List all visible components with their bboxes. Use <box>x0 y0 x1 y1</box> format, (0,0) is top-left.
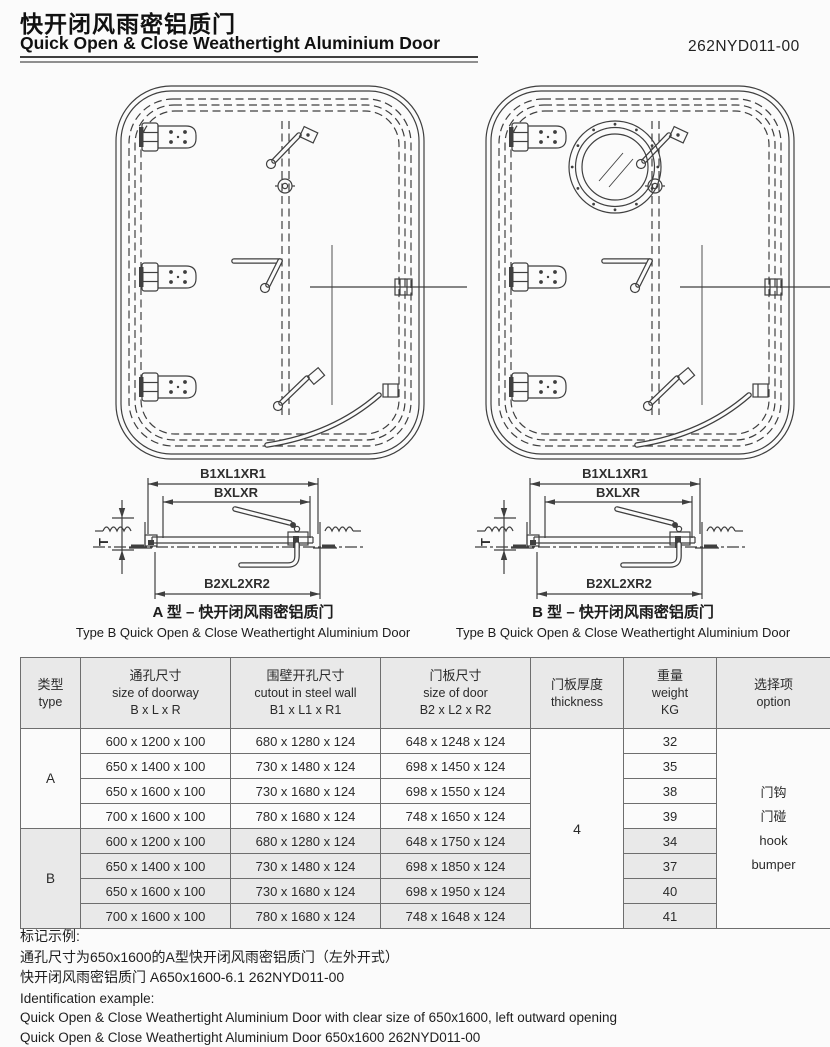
weight-cell: 37 <box>624 854 717 879</box>
cutout-size-cell: 730 x 1480 x 124 <box>231 854 381 879</box>
document-number: 262NYD011-00 <box>688 38 800 56</box>
column-header: 通孔尺寸size of doorwayB x L x R <box>81 658 231 729</box>
type-a-caption-en: Type B Quick Open & Close Weathertight A… <box>63 623 423 643</box>
door-size-cell: 698 x 1550 x 124 <box>381 779 531 804</box>
title-divider <box>20 56 478 63</box>
option-line: 门钩 <box>717 781 830 805</box>
datasheet-page: 快开闭风雨密铝质门 Quick Open & Close Weathertigh… <box>0 0 830 1047</box>
dimension-label-thickness: T <box>96 538 111 546</box>
weight-cell: 35 <box>624 754 717 779</box>
dimension-label-cutout: B1XL1XR1 <box>200 466 266 481</box>
option-line: bumper <box>717 853 830 877</box>
example-line2-en: Quick Open & Close Weathertight Aluminiu… <box>20 1028 815 1047</box>
table-row: 650 x 1600 x 100730 x 1680 x 124698 x 15… <box>21 779 830 804</box>
door-size-cell: 698 x 1950 x 124 <box>381 879 531 904</box>
type-a-caption: A 型 – 快开闭风雨密铝质门 Type B Quick Open & Clos… <box>63 602 423 643</box>
spec-table-body: A600 x 1200 x 100680 x 1280 x 124648 x 1… <box>21 729 830 929</box>
type-b-caption-en: Type B Quick Open & Close Weathertight A… <box>443 623 803 643</box>
type-cell: A <box>21 729 81 829</box>
example-label-zh: 标记示例: <box>20 927 815 947</box>
table-row: 650 x 1400 x 100730 x 1480 x 124698 x 18… <box>21 854 830 879</box>
cutout-size-cell: 780 x 1680 x 124 <box>231 904 381 929</box>
cutout-size-cell: 730 x 1680 x 124 <box>231 779 381 804</box>
weight-cell: 40 <box>624 879 717 904</box>
doorway-size-cell: 650 x 1400 x 100 <box>81 854 231 879</box>
dimension-label-cutout: B1XL1XR1 <box>582 466 648 481</box>
weight-cell: 38 <box>624 779 717 804</box>
table-row: 650 x 1400 x 100730 x 1480 x 124698 x 14… <box>21 754 830 779</box>
door-size-cell: 698 x 1850 x 124 <box>381 854 531 879</box>
weight-cell: 39 <box>624 804 717 829</box>
weight-cell: 32 <box>624 729 717 754</box>
doorway-size-cell: 650 x 1400 x 100 <box>81 754 231 779</box>
table-row: 650 x 1600 x 100730 x 1680 x 124698 x 19… <box>21 879 830 904</box>
cutout-size-cell: 680 x 1280 x 124 <box>231 829 381 854</box>
table-row: A600 x 1200 x 100680 x 1280 x 124648 x 1… <box>21 729 830 754</box>
column-header: 门板尺寸size of doorB2 x L2 x R2 <box>381 658 531 729</box>
option-line: 门碰 <box>717 805 830 829</box>
table-row: B600 x 1200 x 100680 x 1280 x 124648 x 1… <box>21 829 830 854</box>
thickness-cell: 4 <box>531 729 624 929</box>
doorway-size-cell: 700 x 1600 x 100 <box>81 804 231 829</box>
column-header: 门板厚度thickness <box>531 658 624 729</box>
option-cell: 门钩门碰hookbumper <box>717 729 830 929</box>
cutout-size-cell: 780 x 1680 x 124 <box>231 804 381 829</box>
cutout-size-cell: 680 x 1280 x 124 <box>231 729 381 754</box>
type-b-caption-zh: B 型 – 快开闭风雨密铝质门 <box>443 602 803 623</box>
porthole-icon <box>569 121 661 213</box>
door-size-cell: 648 x 1750 x 124 <box>381 829 531 854</box>
example-line1-en: Quick Open & Close Weathertight Aluminiu… <box>20 1008 815 1028</box>
door-size-cell: 698 x 1450 x 124 <box>381 754 531 779</box>
spec-table-header-row: 类型type通孔尺寸size of doorwayB x L x R围壁开孔尺寸… <box>21 658 830 729</box>
door-size-cell: 648 x 1248 x 124 <box>381 729 531 754</box>
door-size-cell: 748 x 1648 x 124 <box>381 904 531 929</box>
weight-cell: 34 <box>624 829 717 854</box>
door-size-cell: 748 x 1650 x 124 <box>381 804 531 829</box>
type-a-section-drawing: B1XL1XR1 BXLXR B2XL2XR2 T <box>85 452 425 602</box>
type-a-caption-zh: A 型 – 快开闭风雨密铝质门 <box>63 602 423 623</box>
type-b-caption: B 型 – 快开闭风雨密铝质门 Type B Quick Open & Clos… <box>443 602 803 643</box>
dimension-label-doorway: BXLXR <box>596 485 641 500</box>
table-row: 700 x 1600 x 100780 x 1680 x 124748 x 16… <box>21 904 830 929</box>
dimension-label-door: B2XL2XR2 <box>586 576 652 591</box>
cutout-size-cell: 730 x 1480 x 124 <box>231 754 381 779</box>
example-line1-zh: 通孔尺寸为650x1600的A型快开闭风雨密铝质门（左外开式） <box>20 948 815 968</box>
column-header: 选择项option <box>717 658 830 729</box>
type-cell: B <box>21 829 81 929</box>
weight-cell: 41 <box>624 904 717 929</box>
doorway-size-cell: 700 x 1600 x 100 <box>81 904 231 929</box>
example-line2-zh: 快开闭风雨密铝质门 A650x1600-6.1 262NYD011-00 <box>20 968 815 988</box>
column-header: 重量weightKG <box>624 658 717 729</box>
cutout-size-cell: 730 x 1680 x 124 <box>231 879 381 904</box>
specification-table: 类型type通孔尺寸size of doorwayB x L x R围壁开孔尺寸… <box>20 657 830 929</box>
dimension-label-thickness: T <box>478 538 493 546</box>
type-b-section-drawing: B1XL1XR1 BXLXR B2XL2XR2 T <box>467 452 807 602</box>
page-title-en: Quick Open & Close Weathertight Aluminiu… <box>20 33 440 54</box>
example-label-en: Identification example: <box>20 989 815 1009</box>
dimension-label-doorway: BXLXR <box>214 485 259 500</box>
doorway-size-cell: 650 x 1600 x 100 <box>81 879 231 904</box>
identification-example: 标记示例: 通孔尺寸为650x1600的A型快开闭风雨密铝质门（左外开式） 快开… <box>20 927 815 1047</box>
dimension-label-door: B2XL2XR2 <box>204 576 270 591</box>
doorway-size-cell: 600 x 1200 x 100 <box>81 729 231 754</box>
column-header: 类型type <box>21 658 81 729</box>
column-header: 围壁开孔尺寸cutout in steel wallB1 x L1 x R1 <box>231 658 381 729</box>
doorway-size-cell: 650 x 1600 x 100 <box>81 779 231 804</box>
type-b-door-drawing <box>485 85 830 460</box>
type-a-door-drawing <box>115 85 475 460</box>
option-line: hook <box>717 829 830 853</box>
doorway-size-cell: 600 x 1200 x 100 <box>81 829 231 854</box>
table-row: 700 x 1600 x 100780 x 1680 x 124748 x 16… <box>21 804 830 829</box>
